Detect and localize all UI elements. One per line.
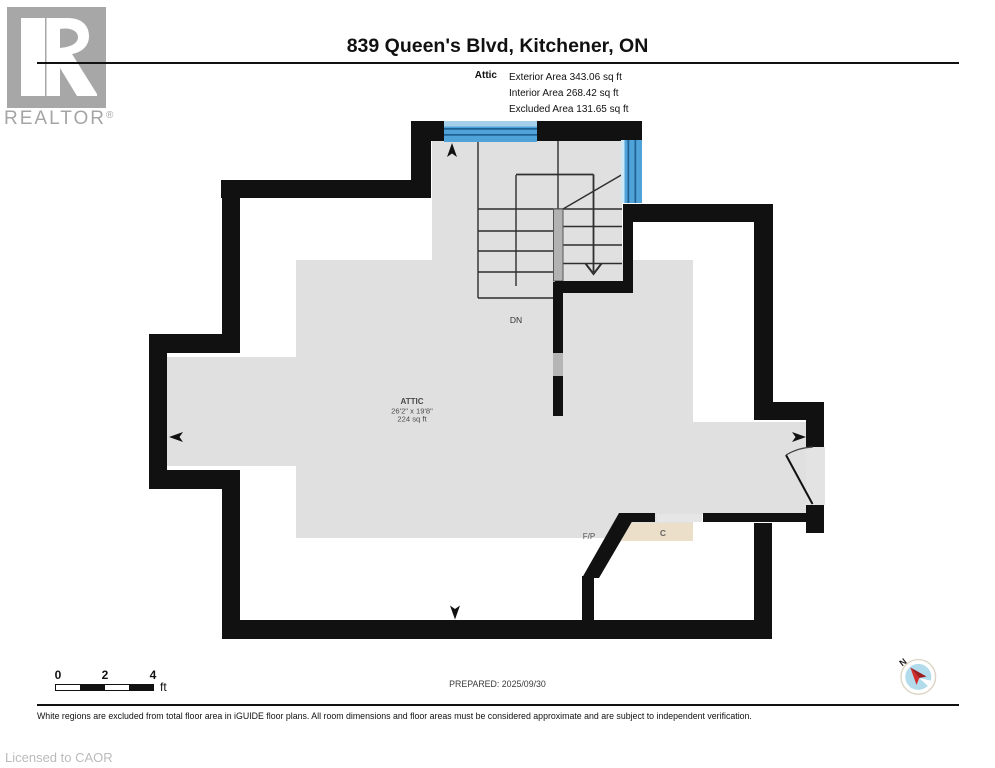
svg-text:F/P: F/P [583, 532, 595, 541]
svg-text:DN: DN [510, 315, 522, 325]
svg-text:C: C [660, 528, 666, 538]
svg-text:ATTIC: ATTIC [401, 397, 424, 406]
svg-text:224 sq ft: 224 sq ft [397, 415, 427, 424]
